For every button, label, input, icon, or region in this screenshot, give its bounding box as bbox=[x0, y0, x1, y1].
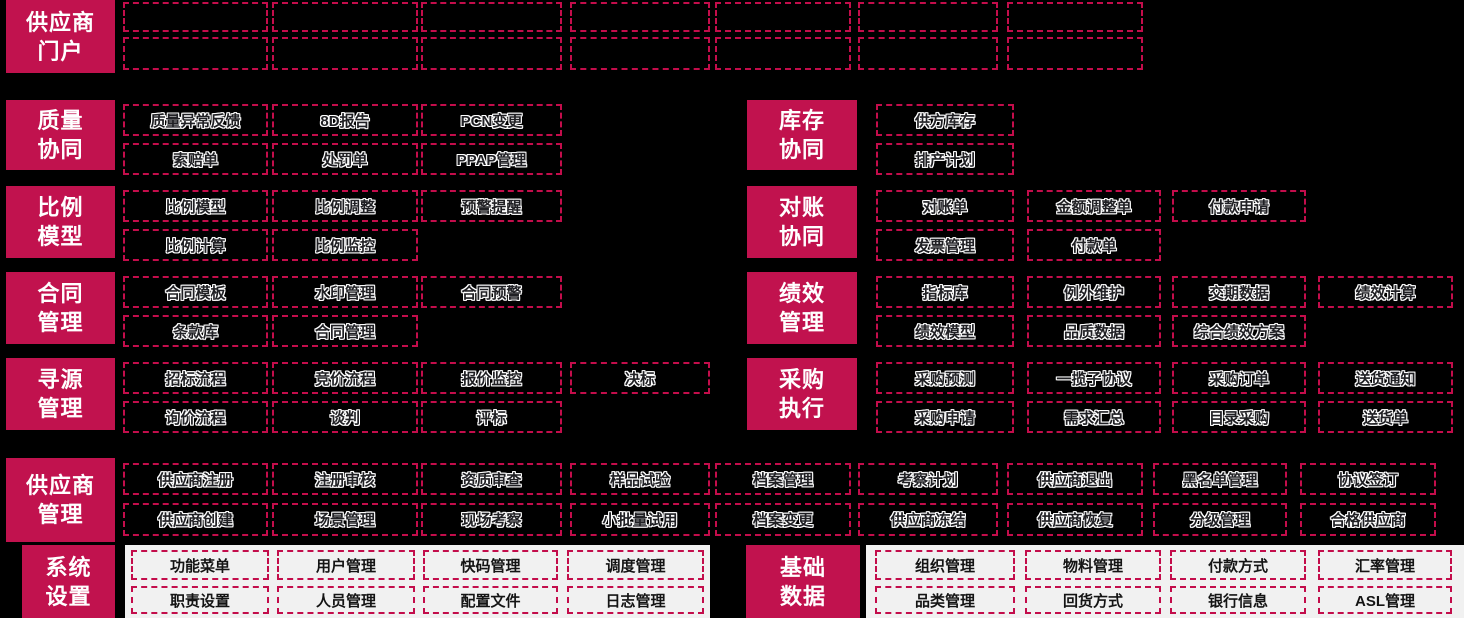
module-box: 现场考察 bbox=[421, 503, 562, 536]
module-box: 用户管理 bbox=[277, 550, 415, 580]
module-box: 条款库 bbox=[123, 315, 268, 347]
module-box: 供应商创建 bbox=[123, 503, 268, 536]
label-line: 管理 bbox=[37, 500, 83, 529]
module-box: 调度管理 bbox=[567, 550, 704, 580]
label-line: 基础 bbox=[780, 553, 826, 582]
module-box-empty bbox=[421, 2, 562, 32]
module-box: 供应商冻结 bbox=[858, 503, 998, 536]
procurement-exec-label: 采购 执行 bbox=[747, 358, 857, 430]
module-box: 送货单 bbox=[1318, 401, 1453, 433]
label-line: 质量 bbox=[37, 106, 83, 135]
sourcing-mgmt-label: 寻源 管理 bbox=[6, 358, 115, 430]
module-box: 合同模板 bbox=[123, 276, 268, 308]
ratio-model-label: 比例 模型 bbox=[6, 186, 115, 258]
label-line: 系统 bbox=[45, 553, 91, 582]
recon-collab-label: 对账 协同 bbox=[747, 186, 857, 258]
module-box: 决标 bbox=[570, 362, 710, 394]
label-line: 比例 bbox=[37, 193, 83, 222]
module-box-empty bbox=[123, 2, 268, 32]
module-box: 档案管理 bbox=[715, 463, 851, 495]
section-quality-and-inventory: 质量 协同 质量异常反馈 8D报告 PCN变更 索赔单 处罚单 PPAP管理 库… bbox=[0, 100, 1464, 178]
label-line: 管理 bbox=[37, 308, 83, 337]
supplier-mgmt-label: 供应商 管理 bbox=[6, 458, 115, 542]
module-box: 水印管理 bbox=[272, 276, 418, 308]
module-box: 付款单 bbox=[1027, 229, 1161, 261]
module-box: 一揽子协议 bbox=[1027, 362, 1161, 394]
label-line: 库存 bbox=[779, 106, 825, 135]
contract-mgmt-label: 合同 管理 bbox=[6, 272, 115, 344]
module-box: 处罚单 bbox=[272, 143, 418, 175]
module-box: 绩效模型 bbox=[876, 315, 1014, 347]
section-supplier-mgmt: 供应商 管理 供应商注册 注册审核 资质审查 样品试验 档案管理 考察计划 供应… bbox=[0, 458, 1464, 542]
module-box: ASL管理 bbox=[1318, 586, 1452, 614]
module-box: 指标库 bbox=[876, 276, 1014, 308]
module-box: 竞价流程 bbox=[272, 362, 418, 394]
module-box: 考察计划 bbox=[858, 463, 998, 495]
module-box: 预警提醒 bbox=[421, 190, 562, 222]
label-line: 供应商 bbox=[26, 471, 95, 500]
label-line: 门户 bbox=[37, 37, 83, 66]
module-box: 样品试验 bbox=[570, 463, 710, 495]
module-box: 评标 bbox=[421, 401, 562, 433]
module-box: 例外维护 bbox=[1027, 276, 1161, 308]
module-box: 银行信息 bbox=[1170, 586, 1306, 614]
module-box: 供应商注册 bbox=[123, 463, 268, 495]
module-box-empty bbox=[858, 37, 998, 70]
label-line: 协同 bbox=[779, 135, 825, 164]
module-box: 8D报告 bbox=[272, 104, 418, 136]
module-box: 索赔单 bbox=[123, 143, 268, 175]
module-box: 供应商退出 bbox=[1007, 463, 1143, 495]
module-box: 快码管理 bbox=[423, 550, 558, 580]
module-box: 供方库存 bbox=[876, 104, 1014, 136]
module-box: 报价监控 bbox=[421, 362, 562, 394]
module-box-empty bbox=[858, 2, 998, 32]
module-box: 功能菜单 bbox=[131, 550, 269, 580]
section-sourcing-and-execution: 寻源 管理 招标流程 竞价流程 报价监控 决标 询价流程 谈判 评标 采购 执行… bbox=[0, 358, 1464, 435]
module-box: 采购预测 bbox=[876, 362, 1014, 394]
section-supplier-portal: 供应商 门户 bbox=[0, 0, 1464, 73]
module-box: 合同管理 bbox=[272, 315, 418, 347]
module-box: 资质审查 bbox=[421, 463, 562, 495]
module-box-empty bbox=[272, 2, 418, 32]
module-box: 付款申请 bbox=[1172, 190, 1306, 222]
module-box: 招标流程 bbox=[123, 362, 268, 394]
module-box: 采购申请 bbox=[876, 401, 1014, 433]
label-line: 协同 bbox=[779, 222, 825, 251]
module-box: 询价流程 bbox=[123, 401, 268, 433]
label-line: 模型 bbox=[37, 222, 83, 251]
module-box: 品质数据 bbox=[1027, 315, 1161, 347]
module-box: PPAP管理 bbox=[421, 143, 562, 175]
basic-data-label: 基础 数据 bbox=[746, 545, 860, 618]
label-line: 绩效 bbox=[779, 279, 825, 308]
module-map-diagram: 供应商 门户 质量 协同 质量异常反馈 8D报告 PCN变更 索赔单 处罚单 P… bbox=[0, 0, 1464, 618]
section-contract-and-perf: 合同 管理 合同模板 水印管理 合同预警 条款库 合同管理 绩效 管理 指标库 … bbox=[0, 272, 1464, 349]
label-line: 供应商 bbox=[26, 8, 95, 37]
module-box: 分级管理 bbox=[1153, 503, 1287, 536]
module-box: 金额调整单 bbox=[1027, 190, 1161, 222]
section-system-and-basic: 系统 设置 功能菜单 用户管理 快码管理 调度管理 职责设置 人员管理 配置文件… bbox=[0, 545, 1464, 618]
module-box: 比例监控 bbox=[272, 229, 418, 261]
performance-mgmt-label: 绩效 管理 bbox=[747, 272, 857, 344]
module-box: 比例调整 bbox=[272, 190, 418, 222]
module-box: 目录采购 bbox=[1172, 401, 1306, 433]
module-box: 协议签订 bbox=[1300, 463, 1436, 495]
label-line: 协同 bbox=[37, 135, 83, 164]
module-box: 谈判 bbox=[272, 401, 418, 433]
module-box: 需求汇总 bbox=[1027, 401, 1161, 433]
module-box: 组织管理 bbox=[875, 550, 1015, 580]
module-box: 职责设置 bbox=[131, 586, 269, 614]
quality-collab-label: 质量 协同 bbox=[6, 100, 115, 170]
module-box: 发票管理 bbox=[876, 229, 1014, 261]
module-box-empty bbox=[272, 37, 418, 70]
module-box: 物料管理 bbox=[1025, 550, 1161, 580]
label-line: 数据 bbox=[780, 582, 826, 611]
module-box: 比例模型 bbox=[123, 190, 268, 222]
module-box: 档案变更 bbox=[715, 503, 851, 536]
module-box-empty bbox=[1007, 2, 1143, 32]
label-line: 管理 bbox=[37, 394, 83, 423]
supplier-portal-label: 供应商 门户 bbox=[6, 0, 115, 73]
label-line: 合同 bbox=[37, 279, 83, 308]
module-box: 绩效计算 bbox=[1318, 276, 1453, 308]
module-box-empty bbox=[421, 37, 562, 70]
label-line: 设置 bbox=[45, 582, 91, 611]
module-box: 比例计算 bbox=[123, 229, 268, 261]
module-box: 付款方式 bbox=[1170, 550, 1306, 580]
module-box: 汇率管理 bbox=[1318, 550, 1452, 580]
module-box-empty bbox=[715, 37, 851, 70]
module-box-empty bbox=[1007, 37, 1143, 70]
module-box: 注册审核 bbox=[272, 463, 418, 495]
module-box: 品类管理 bbox=[875, 586, 1015, 614]
label-line: 执行 bbox=[779, 394, 825, 423]
module-box-empty bbox=[715, 2, 851, 32]
module-box-empty bbox=[570, 37, 710, 70]
module-box: 黑名单管理 bbox=[1153, 463, 1287, 495]
module-box: 质量异常反馈 bbox=[123, 104, 268, 136]
module-box: 日志管理 bbox=[567, 586, 704, 614]
module-box: 合同预警 bbox=[421, 276, 562, 308]
module-box: 合格供应商 bbox=[1300, 503, 1436, 536]
module-box: 综合绩效方案 bbox=[1172, 315, 1306, 347]
label-line: 寻源 bbox=[37, 365, 83, 394]
module-box-empty bbox=[570, 2, 710, 32]
module-box: 回货方式 bbox=[1025, 586, 1161, 614]
section-ratio-and-recon: 比例 模型 比例模型 比例调整 预警提醒 比例计算 比例监控 对账 协同 对账单… bbox=[0, 186, 1464, 263]
module-box: 排产计划 bbox=[876, 143, 1014, 175]
module-box: 供应商恢复 bbox=[1007, 503, 1143, 536]
module-box: 采购订单 bbox=[1172, 362, 1306, 394]
module-box: 人员管理 bbox=[277, 586, 415, 614]
module-box: 交期数据 bbox=[1172, 276, 1306, 308]
module-box: 小批量试用 bbox=[570, 503, 710, 536]
module-box: 配置文件 bbox=[423, 586, 558, 614]
module-box: 送货通知 bbox=[1318, 362, 1453, 394]
label-line: 对账 bbox=[779, 193, 825, 222]
label-line: 采购 bbox=[779, 365, 825, 394]
module-box: 场景管理 bbox=[272, 503, 418, 536]
label-line: 管理 bbox=[779, 308, 825, 337]
module-box: 对账单 bbox=[876, 190, 1014, 222]
inventory-collab-label: 库存 协同 bbox=[747, 100, 857, 170]
module-box-empty bbox=[123, 37, 268, 70]
system-settings-label: 系统 设置 bbox=[22, 545, 115, 618]
module-box: PCN变更 bbox=[421, 104, 562, 136]
